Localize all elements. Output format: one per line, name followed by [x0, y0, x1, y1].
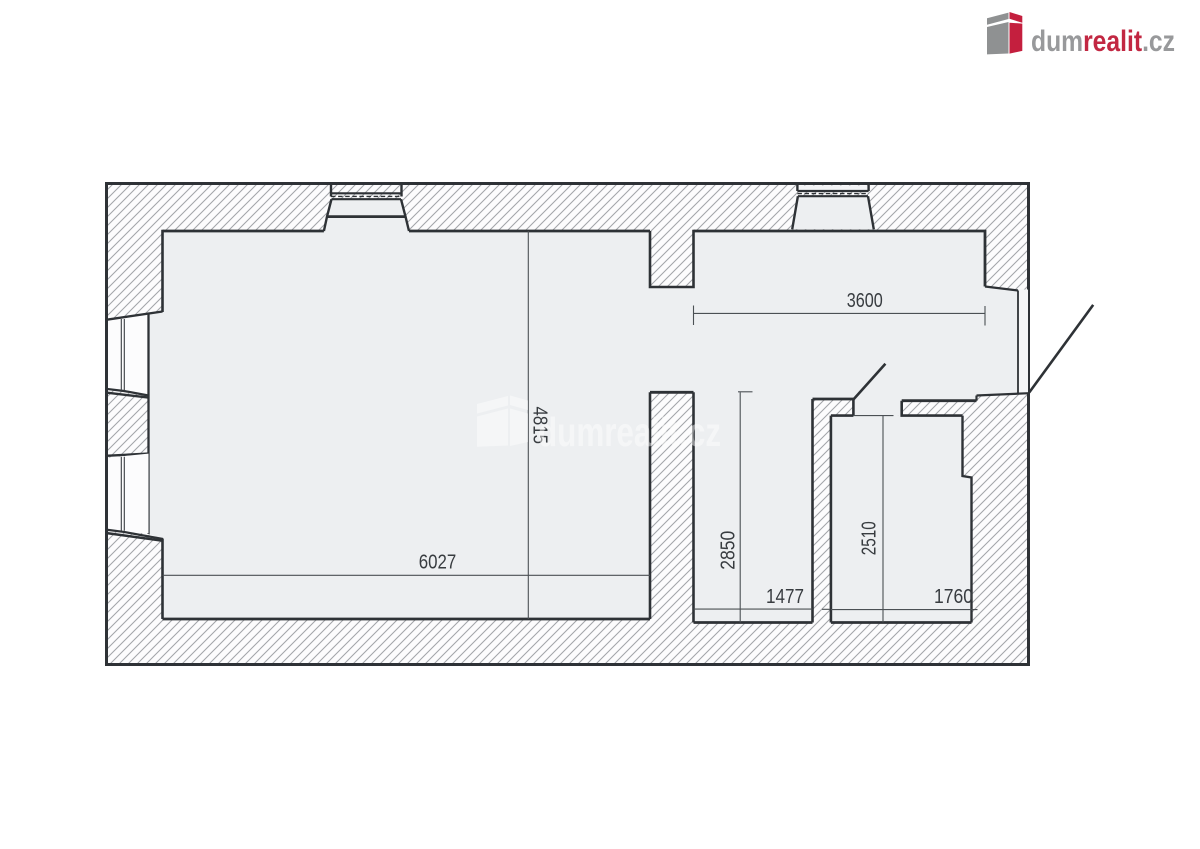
svg-text:1477: 1477	[766, 586, 804, 608]
svg-text:6027: 6027	[419, 552, 457, 574]
svg-text:2510: 2510	[858, 521, 880, 555]
svg-text:2850: 2850	[717, 531, 739, 570]
svg-text:3600: 3600	[847, 290, 883, 312]
svg-text:dumrealit.cz: dumrealit.cz	[538, 409, 721, 455]
svg-text:dumrealit.cz: dumrealit.cz	[1031, 25, 1175, 58]
svg-text:1760: 1760	[934, 586, 973, 608]
